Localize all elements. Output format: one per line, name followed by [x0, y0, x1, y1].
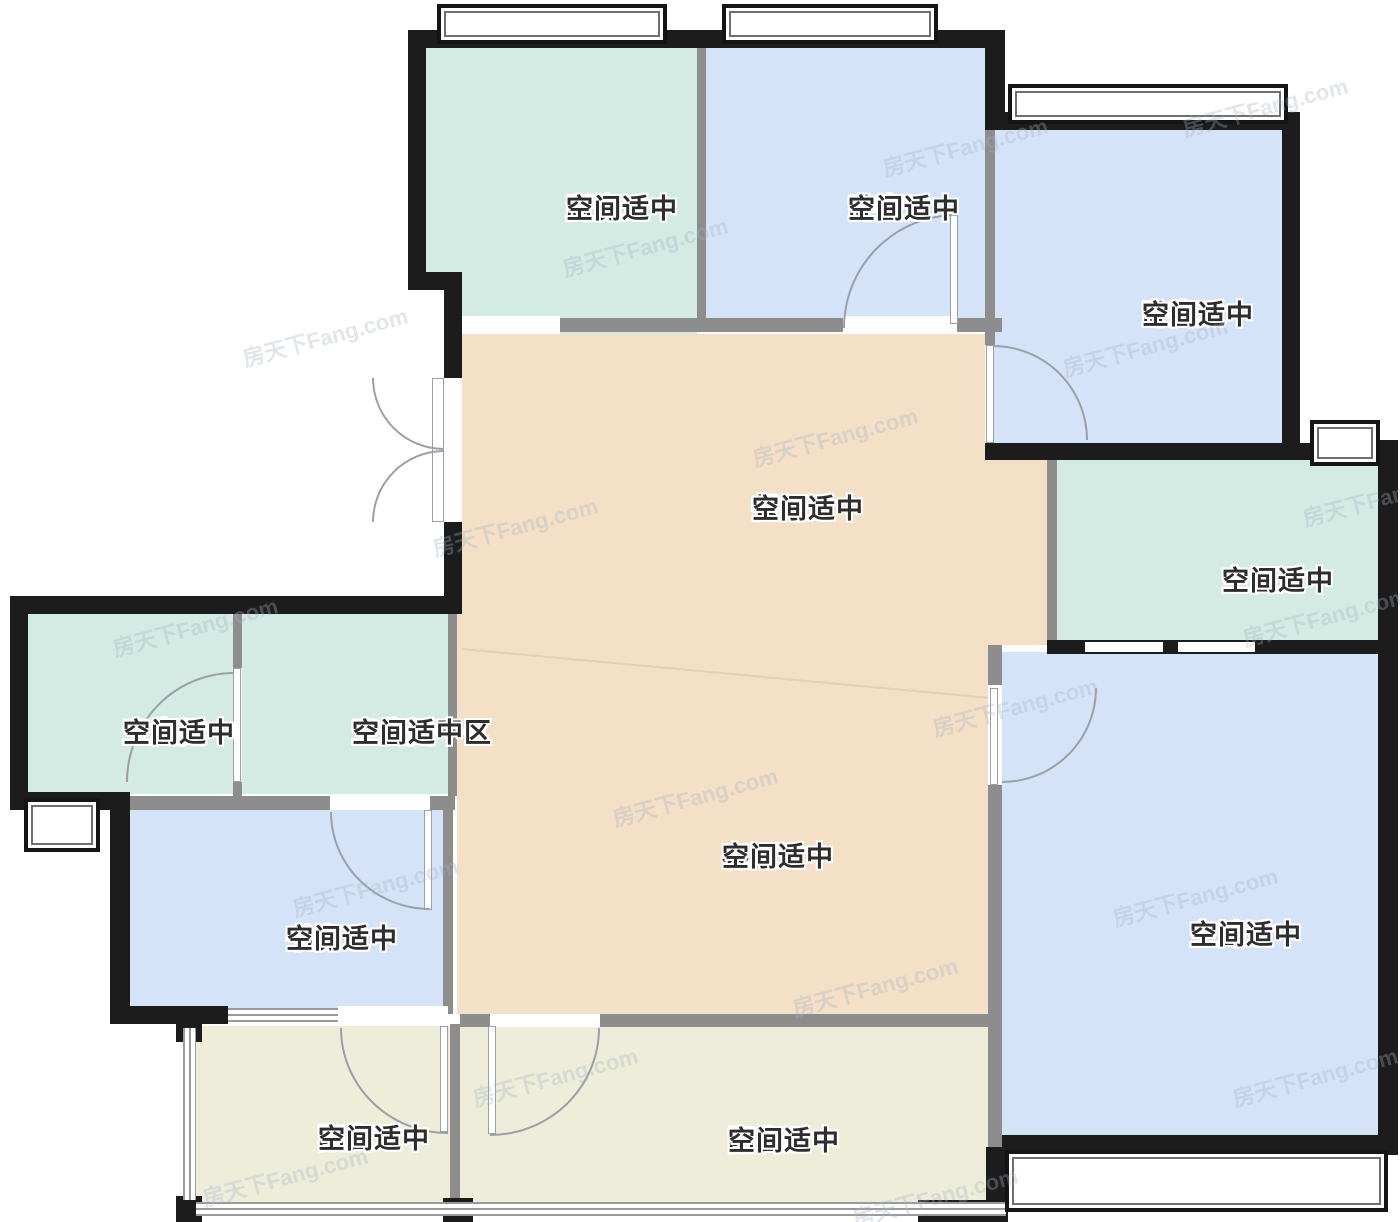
wall-segment: [408, 30, 426, 290]
wall-segment: [450, 1024, 460, 1204]
wall-segment: [10, 596, 462, 614]
balcony-a-door-gap: [490, 1014, 600, 1027]
entry-door-arc-lower: [372, 450, 444, 522]
wall-segment: [1047, 458, 1057, 642]
wall-segment: [985, 130, 995, 345]
balcony-left-railing: [183, 1028, 196, 1200]
wall-segment: [443, 810, 453, 1014]
master-bedroom-door-leaf: [990, 688, 998, 785]
wall-segment: [697, 48, 706, 322]
room-dining-living-floor: [457, 614, 462, 1014]
master-bedroom-bay-window: [1005, 1150, 1388, 1212]
wall-segment: [957, 318, 1002, 332]
wall-segment: [1282, 112, 1300, 460]
floor-plan: 厨房空间适中 卧室空间适中 卧室A空间适中 餐厅空间适中 主卫空间适中 卫生间空…: [0, 0, 1400, 1222]
wall-segment: [444, 290, 462, 378]
wall-segment: [1378, 440, 1398, 1155]
wall-segment: [110, 792, 130, 1024]
wall-segment: [110, 1006, 228, 1024]
room-bathroom-dry-floor: [242, 614, 448, 794]
watermark: 房天下Fang.com: [239, 299, 411, 374]
master-bath-window: [1310, 420, 1380, 466]
room-dining-living-floor: [985, 458, 1047, 645]
wall-segment: [10, 596, 28, 810]
master-bath-door-gap: [1085, 642, 1163, 652]
room-master-bath-floor: [1057, 458, 1382, 642]
wall-segment: [560, 318, 843, 332]
entry-door-arc-upper: [372, 378, 444, 450]
study-window: [228, 1008, 338, 1024]
balcony-door-gap: [338, 1006, 448, 1024]
kitchen-window: [437, 4, 667, 44]
kitchen-opening: [462, 316, 560, 334]
study-door-gap: [330, 796, 430, 810]
master-bath-door-gap: [1178, 642, 1255, 652]
wall-segment: [448, 614, 457, 796]
balcony-bottom-railing: [196, 1202, 1006, 1216]
wall-segment: [408, 272, 462, 290]
bedroom-a-window: [1008, 84, 1288, 124]
bedroom-window: [722, 4, 938, 44]
bathroom-window: [24, 798, 100, 852]
room-kitchen-floor: [426, 48, 697, 290]
